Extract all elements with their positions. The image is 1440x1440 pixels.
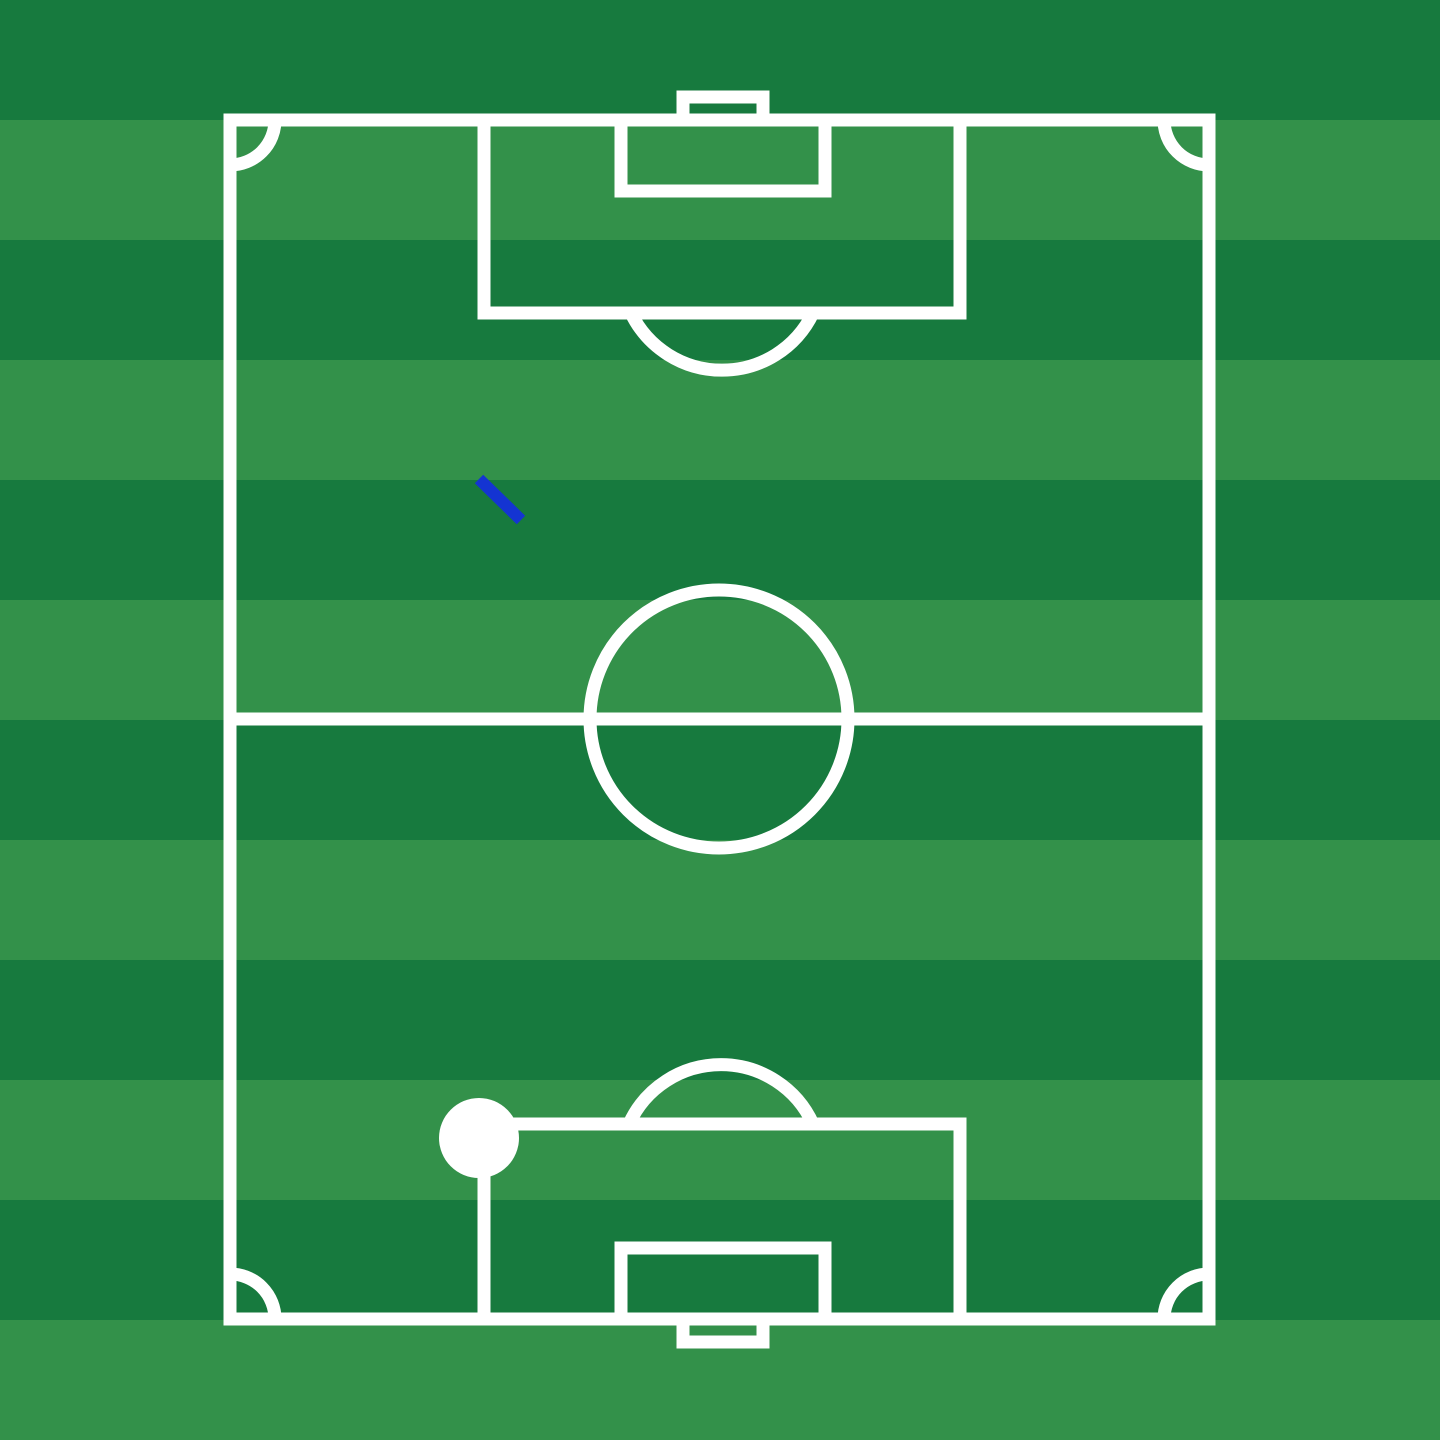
pitch-stripe (0, 840, 1440, 960)
pitch-stripe (0, 480, 1440, 600)
pitch-stripe (0, 360, 1440, 480)
pitch-stripe (0, 1080, 1440, 1200)
pitch-stripe (0, 240, 1440, 360)
pitch-stripe (0, 120, 1440, 240)
pitch-stripe (0, 720, 1440, 840)
pitch-stripe (0, 600, 1440, 720)
pitch-stripe (0, 1200, 1440, 1320)
soccer-pitch-canvas (0, 0, 1440, 1440)
tactics-board (0, 0, 1440, 1440)
player-marker[interactable] (439, 1098, 519, 1178)
